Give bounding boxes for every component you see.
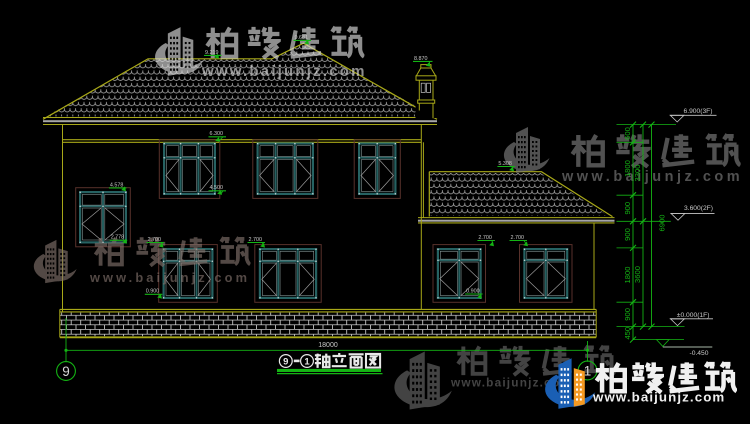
svg-text:www.baijunjz.com: www.baijunjz.com — [89, 270, 250, 285]
svg-text:900: 900 — [623, 308, 632, 321]
svg-text:3300: 3300 — [633, 165, 642, 182]
svg-text:6.900(3F): 6.900(3F) — [684, 108, 713, 115]
svg-text:±0.000(1F): ±0.000(1F) — [677, 312, 710, 319]
svg-text:www.baijunjz.com: www.baijunjz.com — [201, 63, 367, 80]
svg-text:9: 9 — [62, 364, 70, 379]
svg-text:18000: 18000 — [318, 342, 338, 349]
svg-text:9: 9 — [283, 356, 288, 367]
svg-text:3600: 3600 — [633, 266, 642, 283]
svg-text:900: 900 — [623, 228, 632, 241]
svg-text:www.baijunjz.com: www.baijunjz.com — [561, 169, 743, 185]
svg-text:1800: 1800 — [623, 160, 632, 177]
svg-text:1: 1 — [584, 364, 592, 379]
svg-text:www.baijunjz.com: www.baijunjz.com — [592, 390, 725, 405]
svg-text:600: 600 — [623, 127, 632, 140]
svg-text:-0.450: -0.450 — [690, 350, 709, 357]
svg-text:1: 1 — [304, 356, 310, 367]
svg-text:450: 450 — [623, 327, 632, 340]
svg-text:1800: 1800 — [623, 267, 632, 284]
svg-text:6900: 6900 — [658, 215, 667, 232]
svg-text:3.600(2F): 3.600(2F) — [684, 205, 713, 212]
svg-text:900: 900 — [623, 202, 632, 215]
